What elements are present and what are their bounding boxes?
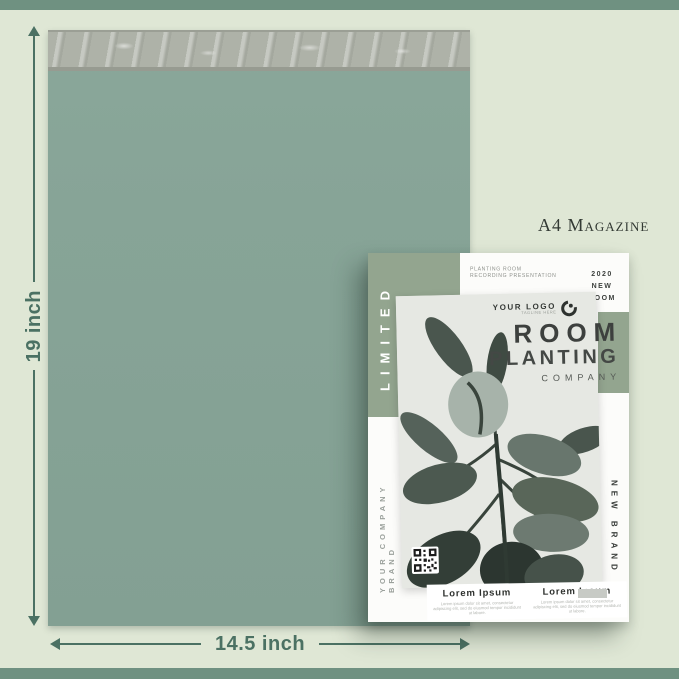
a4-magazine-label: A4 Magazine <box>538 215 649 236</box>
height-dimension-label: 19 inch <box>23 282 46 370</box>
arrow-up-icon <box>28 26 40 36</box>
width-dimension-label: 14.5 inch <box>201 633 319 656</box>
category-line-2: RECORDING PRESENTATION <box>470 273 564 280</box>
left-side-vertical-label: YOUR COMPANY BRAND <box>378 448 396 593</box>
cover-title-line-2: PLANTING <box>489 345 620 372</box>
width-dimension-arrow: 14.5 inch <box>50 634 470 654</box>
magazine-cover: LIMITED PLANTING ROOM RECORDING PRESENTA… <box>368 253 629 622</box>
top-border-strip <box>0 0 679 10</box>
footer-heading-2: Lorem Ipsum <box>527 585 627 598</box>
cover-title-line-1: ROOM <box>489 319 623 348</box>
arrow-down-icon <box>28 616 40 626</box>
company-logo-icon <box>560 299 578 317</box>
cover-title-line-3: COMPANY <box>490 369 622 388</box>
footer-column-1: Lorem Ipsum Lorem ipsum dolor sit amet, … <box>427 587 528 621</box>
logo-text-block: YOUR LOGO TAGLINE HERE <box>493 301 557 317</box>
logo-tagline: TAGLINE HERE <box>514 310 556 315</box>
dimension-line <box>33 36 35 282</box>
footer-heading-1: Lorem Ipsum <box>427 587 527 600</box>
cover-footer: Lorem Ipsum Lorem ipsum dolor sit amet, … <box>427 581 628 620</box>
right-side-vertical-label: NEW BRAND <box>605 479 623 575</box>
footer-body-1: Lorem ipsum dolor sit amet, consectetur … <box>433 601 522 617</box>
dimension-line <box>33 370 35 616</box>
issue-line-1: 2020 <box>581 269 623 281</box>
barcode-placeholder <box>578 589 607 598</box>
bottom-border-strip <box>0 668 679 679</box>
logo-row: YOUR LOGO TAGLINE HERE <box>493 299 579 319</box>
limited-label: LIMITED <box>372 271 398 403</box>
category-line-1: PLANTING ROOM <box>470 266 564 273</box>
dimension-line <box>60 643 201 645</box>
cover-title: ROOM PLANTING COMPANY <box>489 319 617 388</box>
category-lines: PLANTING ROOM RECORDING PRESENTATION <box>470 266 564 280</box>
bag-adhesive-flap <box>48 30 470 71</box>
height-dimension-arrow: 19 inch <box>24 26 44 626</box>
footer-body-2: Lorem ipsum dolor sit amet, consectetur … <box>533 599 622 615</box>
arrow-right-icon <box>460 638 470 650</box>
dimension-line <box>319 643 460 645</box>
arrow-left-icon <box>50 638 60 650</box>
qr-code <box>411 546 439 574</box>
